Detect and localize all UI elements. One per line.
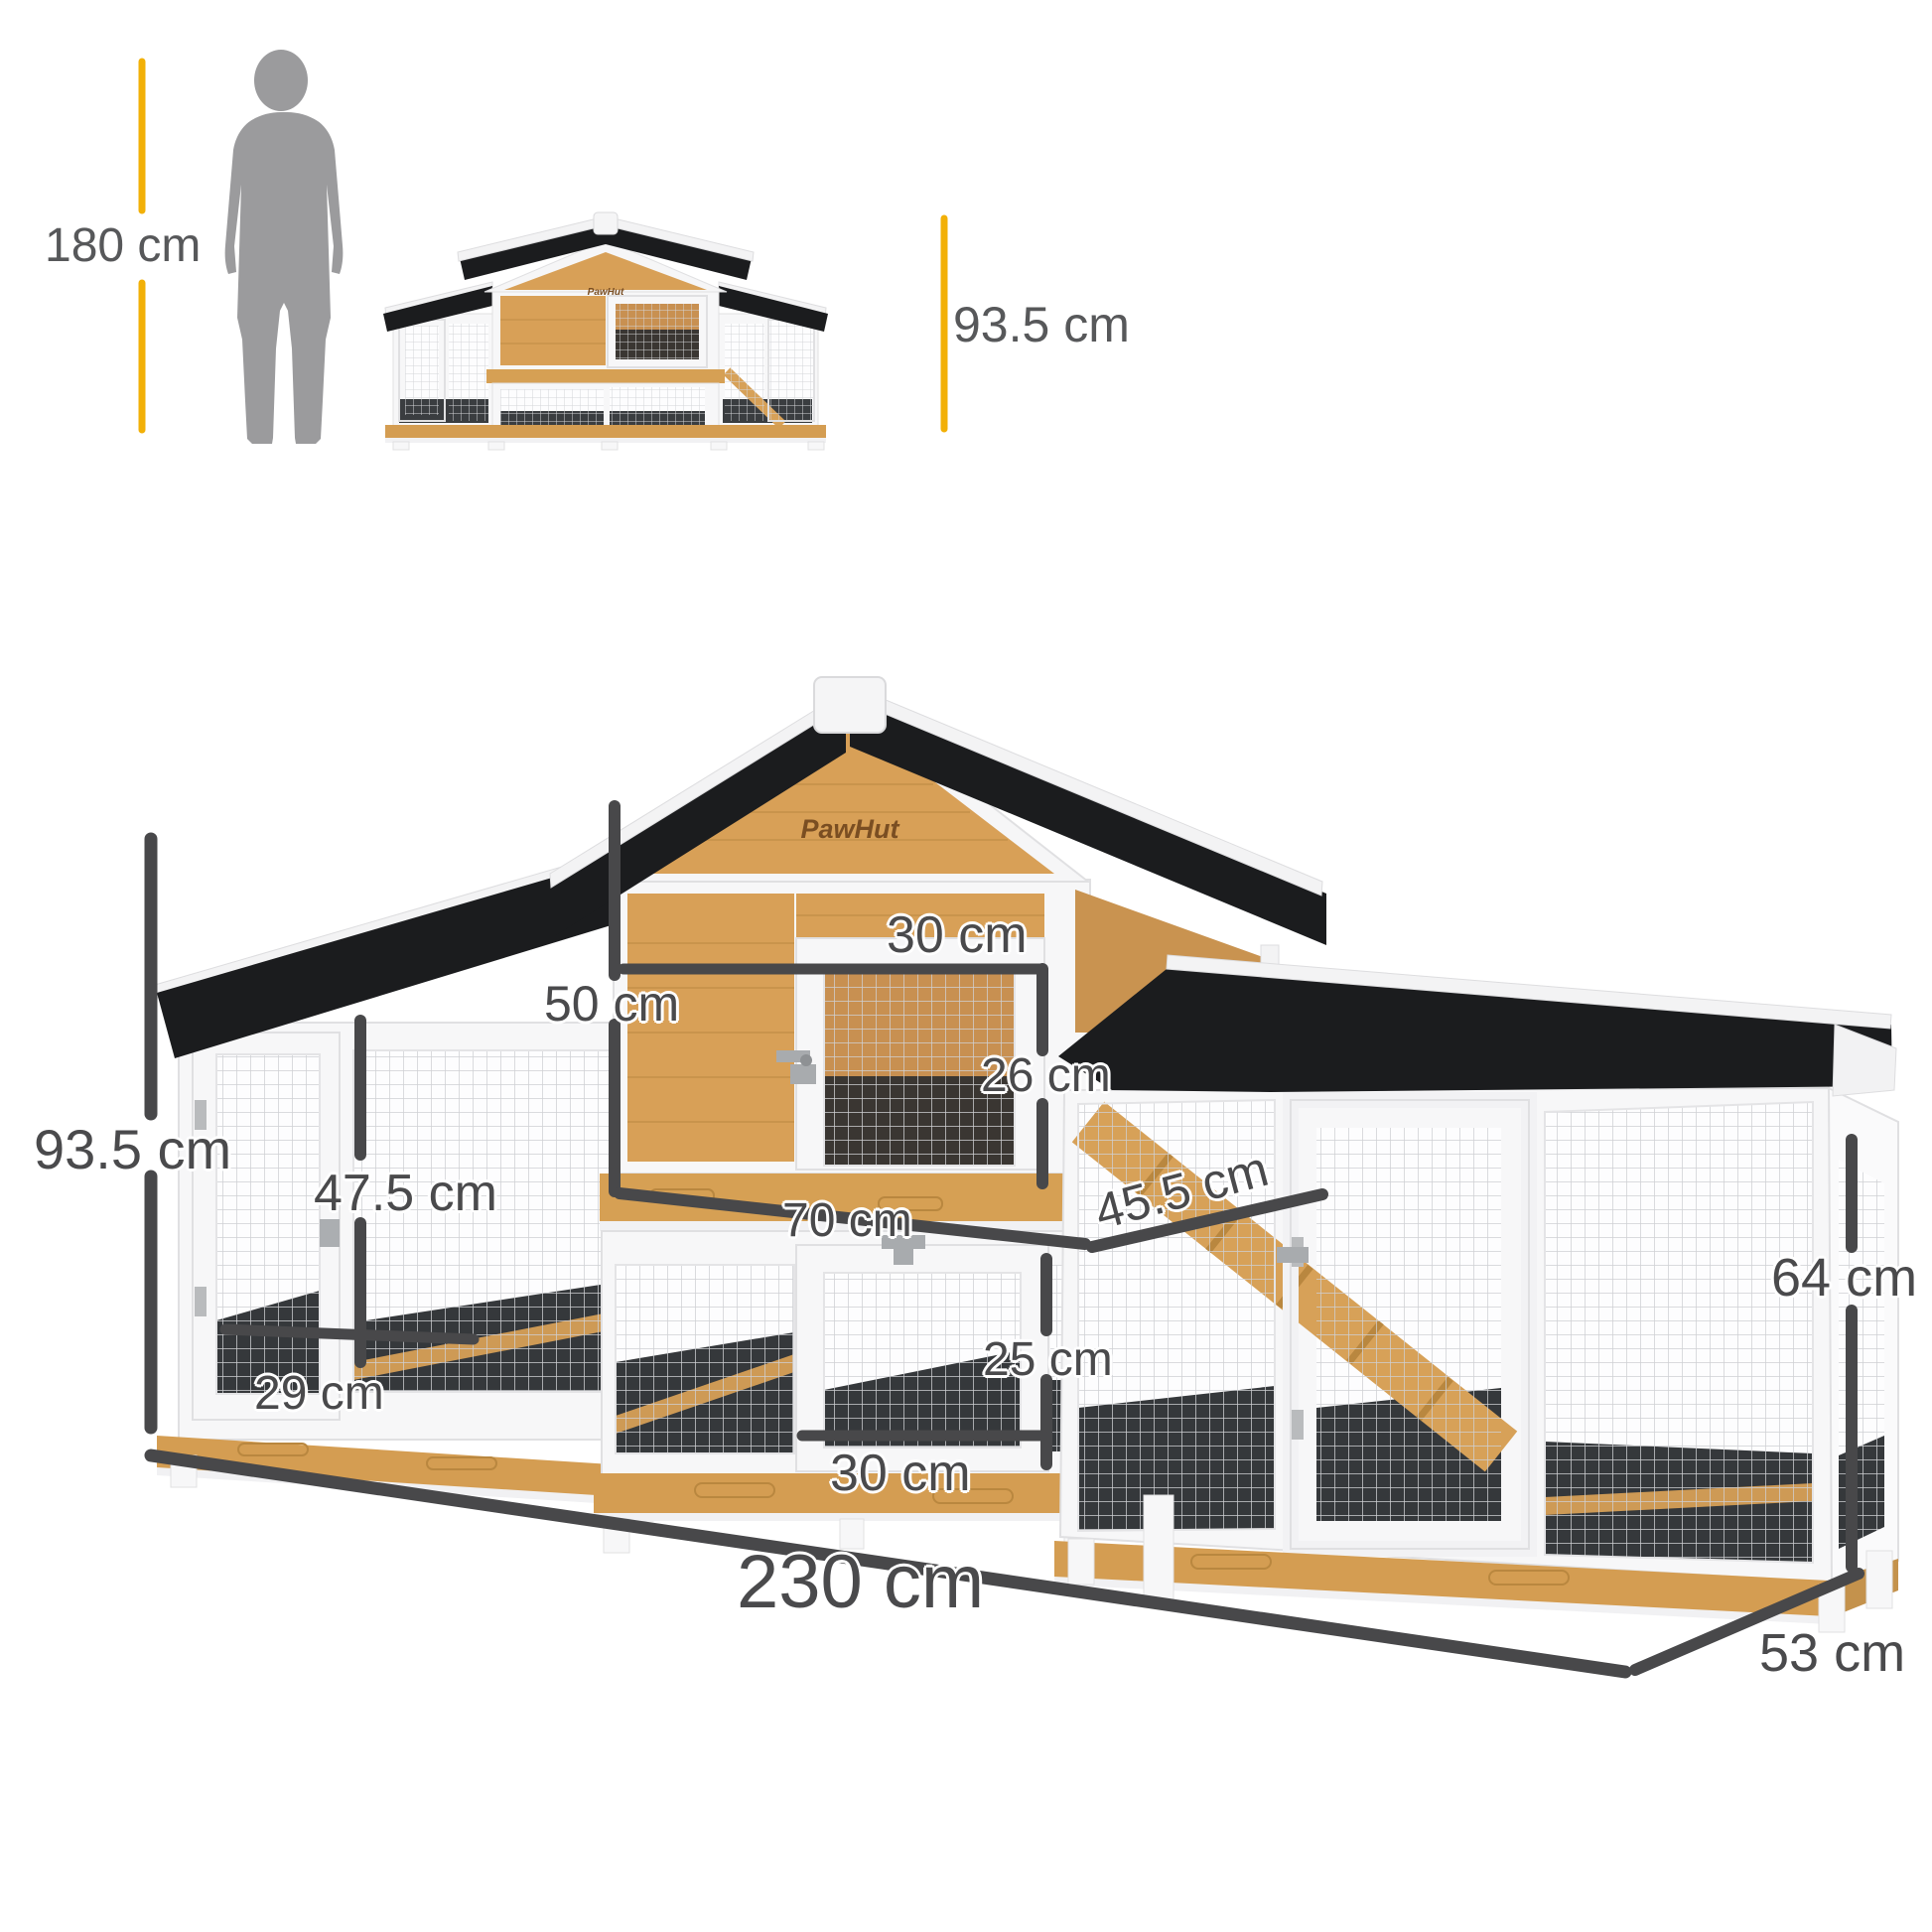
person-height-label: 180 cm xyxy=(45,222,201,270)
overall-width-label: 230 cm xyxy=(737,1545,984,1620)
front-view-thumbnail xyxy=(383,212,828,450)
right-run-height-label: 64 cm xyxy=(1771,1251,1917,1305)
lower-door-height-label: 25 cm xyxy=(983,1336,1113,1384)
overall-height-label: 93.5 cm xyxy=(34,1122,231,1177)
thumbnail-brand-logo: PawHut xyxy=(582,288,629,298)
upper-door-height-label: 26 cm xyxy=(981,1052,1111,1100)
overall-depth-label: 53 cm xyxy=(1759,1626,1905,1680)
upper-door-width-label: 30 cm xyxy=(887,909,1028,961)
diagram-canvas xyxy=(0,0,1932,1932)
upper-tier-width-label: 70 cm xyxy=(782,1197,912,1245)
thumbnail-height-label: 93.5 cm xyxy=(953,300,1130,349)
left-door-height-label: 47.5 cm xyxy=(314,1168,497,1219)
upper-hutch-height-label: 50 cm xyxy=(544,979,679,1029)
brand-logo: PawHut xyxy=(770,816,929,843)
product-dimension-diagram: 180 cm 93.5 cm 93.5 cm 47.5 cm 29 cm 50 … xyxy=(0,0,1932,1932)
left-door-width-label: 29 cm xyxy=(254,1370,384,1418)
lower-door-width-label: 30 cm xyxy=(830,1448,971,1499)
person-silhouette-icon xyxy=(225,50,344,444)
